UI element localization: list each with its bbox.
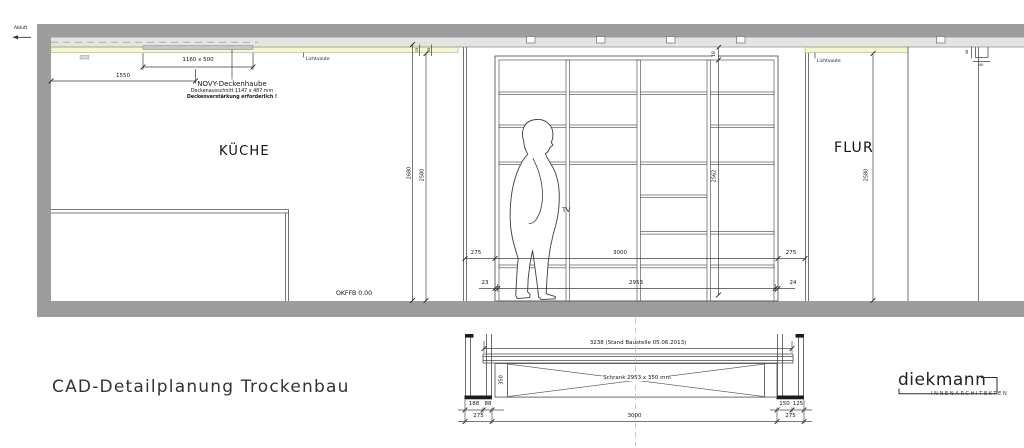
drawing-canvas: Abluft 1160 x 500 1550 NOVY-Deckenhaube …	[0, 0, 1024, 448]
logo-diekmann: diekmann	[898, 372, 986, 389]
section-wall-right-total-dim: 275	[785, 414, 796, 420]
section-width-dim: 3000	[628, 414, 642, 420]
voute-detail-dim-1: 15	[415, 48, 419, 53]
logo-subtitle: INNENARCHITEKTEN	[931, 392, 1008, 397]
section-wall-right-a-dim: 150	[779, 402, 790, 408]
section-total-dim: 3238 (Stand Baustelle 05.06.2013)	[590, 341, 687, 347]
plan-section	[458, 318, 812, 446]
shelf-side-right-dim: 275	[786, 251, 797, 257]
section-depth-dim: 350	[500, 375, 505, 385]
height-dim-hall: 2580	[864, 169, 869, 182]
corner-detail-dim-1: 48	[965, 50, 969, 55]
lichtvoute-left-label: Lichtvoute	[306, 58, 330, 63]
abluft-arrow-icon	[13, 35, 32, 39]
shelf-opening-dim: 3000	[613, 251, 627, 257]
shelf-gap-dim: 18	[712, 49, 717, 58]
height-dim-kitchen-raw: 2680	[407, 167, 412, 180]
hood-name-label: NOVY-Deckenhaube	[197, 81, 266, 88]
shelf-side-left-dim: 275	[471, 251, 482, 257]
tv-label: TV	[562, 207, 570, 214]
section-wall-right-b-dim: 125	[793, 402, 804, 408]
hood-recess	[143, 46, 253, 50]
room-label-kitchen: KÜCHE	[219, 145, 270, 158]
page-title: CAD-Detailplanung Trockenbau	[52, 379, 350, 396]
section-wall-left-b-dim: 88	[485, 402, 492, 408]
abluft-label: Abluft	[14, 27, 27, 32]
corner-detail-dim-2: 40	[979, 63, 984, 67]
section-wall-left-total-dim: 275	[473, 414, 484, 420]
shelf-panel-left-dim: 23	[482, 281, 489, 287]
hood-size-dim: 1160 x 500	[182, 58, 213, 64]
room-label-hall: FLUR	[834, 141, 874, 155]
lichtvoute-right-label: Lichtvoute	[817, 60, 841, 65]
height-dim-kitchen-clear: 2580	[421, 169, 426, 182]
hood-note-label: Deckenverstärkung erforderlich !	[187, 96, 277, 101]
section-cabinet-label: Schrank 2953 x 350 mm	[602, 376, 673, 382]
voute-detail-dim-2: 35	[427, 48, 431, 53]
shelf-height-dim: 2562	[712, 168, 717, 184]
shelf-inner-dim: 2953	[629, 281, 643, 287]
shelf-panel-right-dim: 24	[790, 281, 797, 287]
hood-offset-dim: 1550	[116, 74, 130, 80]
section-wall-left-a-dim: 188	[469, 402, 480, 408]
okffb-label: OKFFB 0.00	[336, 291, 372, 297]
person-silhouette	[510, 119, 559, 299]
